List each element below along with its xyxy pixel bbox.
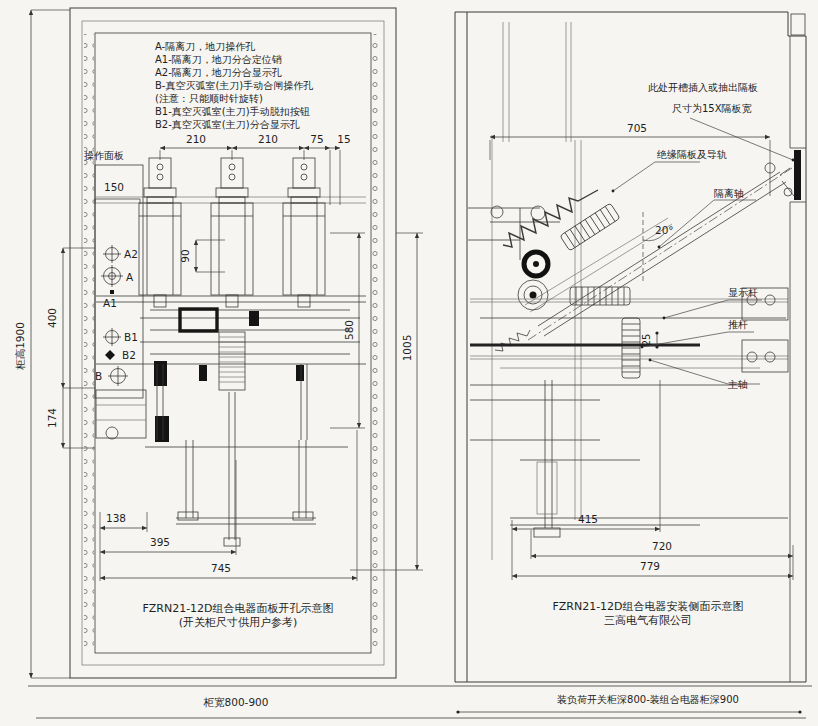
legend-line-2: A1-隔离刀，地刀分合定位销 <box>155 54 282 65</box>
marker-A-label: A <box>126 271 134 283</box>
left-caption-line-2: (开关柜尺寸供用户参考) <box>179 616 298 629</box>
legend-line-5: (注意：只能顺时针旋转) <box>155 93 263 104</box>
dim-400: 400 <box>46 308 58 328</box>
marker-B1-label: B1 <box>124 331 138 343</box>
dim-174: 174 <box>46 408 58 428</box>
dim-745: 745 <box>211 562 231 574</box>
dim-720: 720 <box>652 540 672 552</box>
hole-marker-B <box>108 366 128 386</box>
isolation-shaft-label: 隔离轴 <box>714 188 744 199</box>
pole-assemblies <box>96 158 366 307</box>
aux-spring <box>495 330 530 351</box>
hole-marker-B1 <box>103 328 121 346</box>
right-caption-line-1: FZRN21-12D组合电器安装侧面示意图 <box>552 600 743 613</box>
mounting-hole-column-right <box>372 34 382 652</box>
cabinet-depth-label: 装负荷开关柜深800-装组合电器柜深900 <box>557 694 739 705</box>
insulator-vertical <box>622 318 640 378</box>
mounting-hole-column-left <box>84 34 94 652</box>
dim-15: 15 <box>337 133 350 145</box>
dim-150-label: 150 <box>104 181 124 193</box>
hole-marker-A2 <box>103 245 121 263</box>
marker-A2-label: A2 <box>124 248 138 260</box>
legend-line-6: B1-真空灭弧室(主刀)手动脱扣按钮 <box>155 106 310 117</box>
dim-580: 580 <box>343 320 355 340</box>
left-caption: FZRN21-12D组合电器面板开孔示意图 (开关柜尺寸供用户参考) <box>142 602 333 629</box>
right-dimensions: 705 25 415 720 779 <box>490 122 793 580</box>
dim-75: 75 <box>310 133 323 145</box>
partition-slot <box>794 150 801 200</box>
dim-90: 90 <box>179 249 191 262</box>
angle-label: 20° <box>655 224 674 236</box>
dim-1005: 1005 <box>401 335 413 362</box>
dim-395: 395 <box>150 536 170 548</box>
slot-note-line-2: 尺寸为15X隔板宽 <box>672 103 752 114</box>
marker-A1-label: A1 <box>103 297 117 309</box>
operation-panel-label: 操作面板 <box>84 150 124 161</box>
push-rod-label: 推杆 <box>728 319 748 330</box>
legend-line-1: A-隔离刀，地刀操作孔 <box>155 41 255 52</box>
main-shaft-label: 主轴 <box>727 379 748 390</box>
dim-210-a: 210 <box>186 133 206 145</box>
closing-spring <box>503 190 598 247</box>
hole-marker-A <box>101 265 123 287</box>
drawing-canvas: A-隔离刀，地刀操作孔 A1-隔离刀，地刀分合定位销 A2-隔离刀，地刀分合显示… <box>0 0 818 726</box>
dim-415: 415 <box>578 513 598 525</box>
dim-25: 25 <box>641 334 652 347</box>
right-mechanism <box>468 135 794 560</box>
cabinet-width-label: 柜宽800-900 <box>203 696 269 708</box>
legend-line-4: B-真空灭弧室(主刀)手动合闸操作孔 <box>155 80 313 91</box>
shaft-pivot-upper <box>524 252 548 276</box>
hole-marker-A1 <box>110 290 114 294</box>
display-rod-label: 显示杆 <box>728 287 758 298</box>
right-cabinet-outline <box>455 12 806 682</box>
legend-block: A-隔离刀，地刀操作孔 A1-隔离刀，地刀分合定位销 A2-隔离刀，地刀分合显示… <box>155 41 313 130</box>
marker-B2-label: B2 <box>122 349 136 361</box>
hole-marker-B2 <box>105 350 115 360</box>
bottom-strip: 柜宽800-900 装负荷开关柜深800-装组合电器柜深900 <box>28 686 812 718</box>
shaft-pivot-lower <box>518 280 548 310</box>
legend-line-3: A2-隔离刀，地刀分合显示孔 <box>155 67 282 78</box>
rail-label: 绝缘隔板及导轨 <box>656 149 727 160</box>
technical-drawing-page: A-隔离刀，地刀操作孔 A1-隔离刀，地刀分合定位销 A2-隔离刀，地刀分合显示… <box>0 0 818 726</box>
dim-705: 705 <box>627 122 647 134</box>
left-caption-line-1: FZRN21-12D组合电器面板开孔示意图 <box>142 602 333 615</box>
slot-note-line-1: 此处开槽插入或抽出隔板 <box>648 82 758 93</box>
marker-B-label: B <box>95 370 102 382</box>
right-caption: FZRN21-12D组合电器安装侧面示意图 三高电气有限公司 <box>552 600 743 627</box>
dim-779: 779 <box>640 560 660 572</box>
dim-138: 138 <box>106 512 126 524</box>
dim-210-b: 210 <box>258 133 278 145</box>
legend-line-7: B2-真空灭弧室(主刀)分合显示孔 <box>155 119 300 130</box>
dim-cabinet-height: 柜高1900 <box>14 322 26 371</box>
handle-socket-outline <box>180 309 217 331</box>
right-caption-line-2: 三高电气有限公司 <box>604 614 692 627</box>
